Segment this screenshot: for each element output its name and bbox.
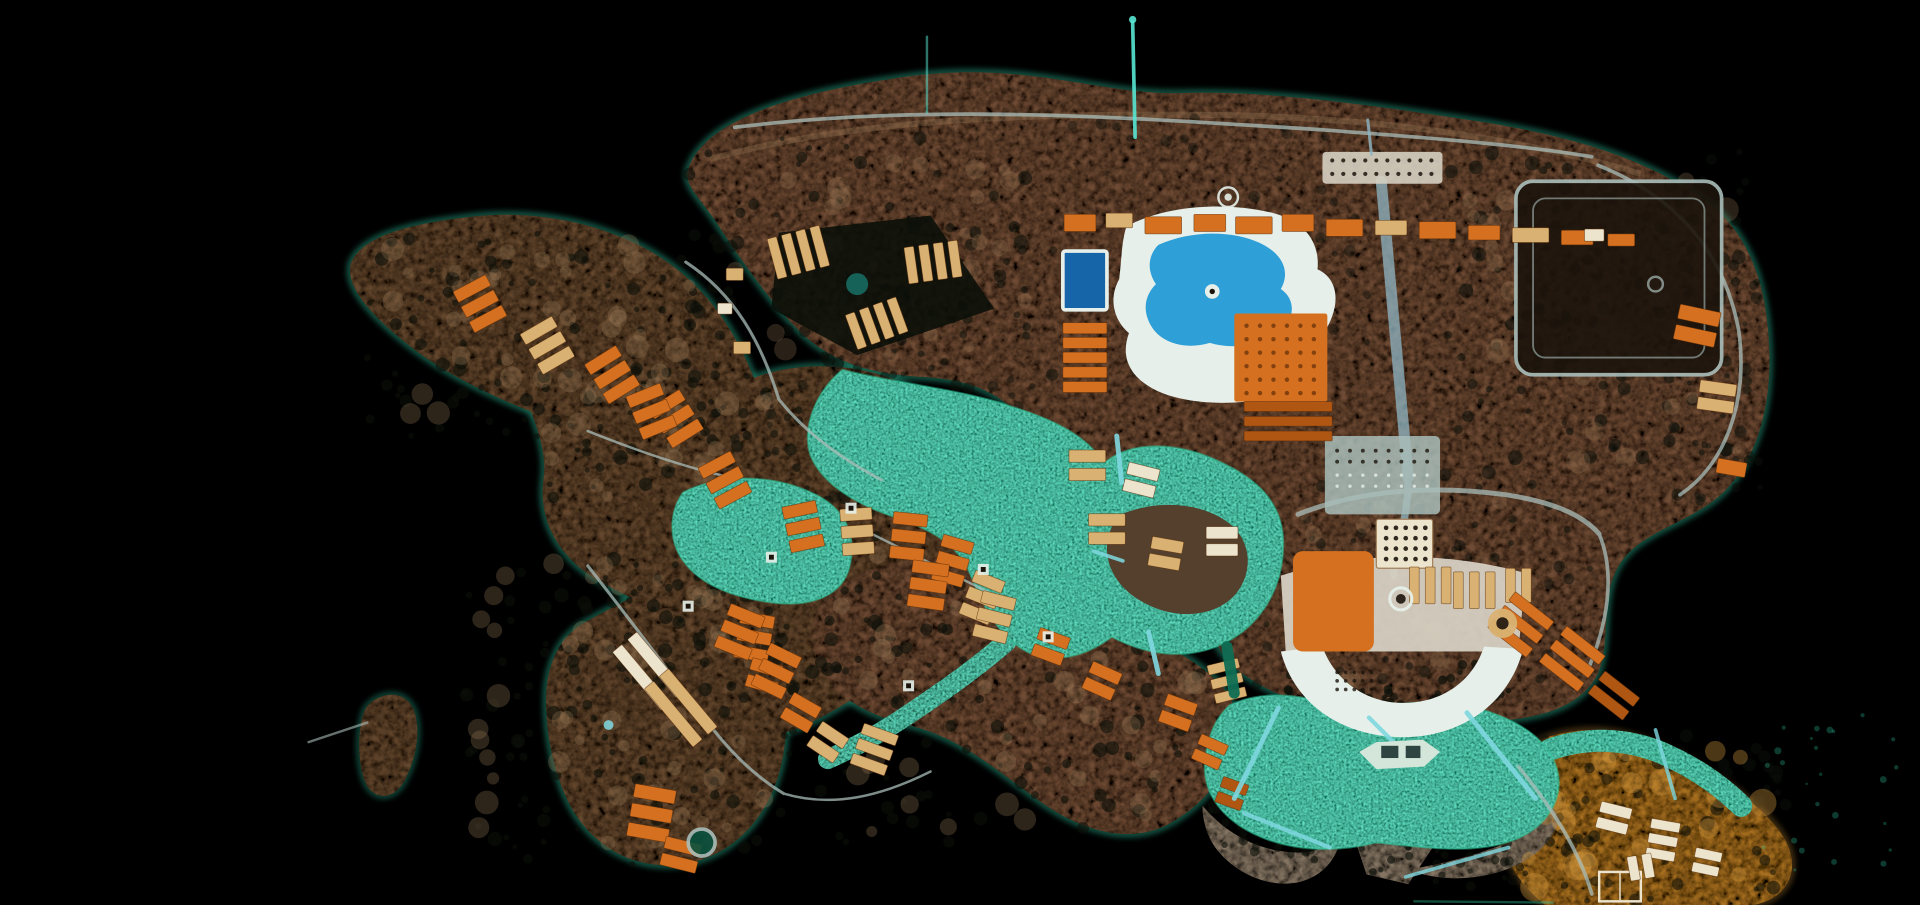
grid-dot <box>1361 460 1365 464</box>
speckle-dot <box>945 223 955 233</box>
speckle-dot <box>1697 494 1706 503</box>
speckle-dot <box>660 274 667 281</box>
building-roof <box>1089 532 1126 544</box>
speckle-dot <box>710 370 720 380</box>
speckle-dot <box>475 791 499 815</box>
speckle-dot <box>1774 747 1781 754</box>
speckle-dot <box>1172 744 1178 750</box>
speckle-dot <box>1378 867 1383 872</box>
speckle-dot <box>726 795 739 808</box>
speckle-dot <box>1561 882 1568 889</box>
speckle-dot <box>1127 682 1133 688</box>
speckle-dot <box>687 585 702 600</box>
speckle-dot <box>484 586 503 605</box>
speckle-dot <box>735 208 745 218</box>
speckle-dot <box>1728 260 1739 271</box>
speckle-dot <box>602 491 613 502</box>
speckle-dot <box>885 154 903 172</box>
speckle-dot <box>488 832 502 846</box>
speckle-dot <box>589 478 603 492</box>
speckle-dot <box>1153 740 1167 754</box>
speckle-dot <box>506 752 515 761</box>
speckle-dot <box>1104 171 1109 176</box>
building-roof <box>1512 228 1549 243</box>
grid-dot <box>1429 172 1433 176</box>
speckle-dot <box>542 806 550 814</box>
speckle-dot <box>1604 879 1613 888</box>
speckle-dot <box>1124 386 1131 393</box>
grid-dot <box>1374 172 1378 176</box>
speckle-dot <box>403 268 414 279</box>
speckle-dot <box>701 589 723 611</box>
speckle-dot <box>1472 247 1486 261</box>
grid-dot <box>1418 158 1422 162</box>
speckle-dot <box>830 187 852 209</box>
speckle-dot <box>884 347 898 361</box>
speckle-dot <box>1387 856 1395 864</box>
grid-dot <box>1271 324 1275 328</box>
building-roof <box>1063 323 1107 334</box>
gazebo-pad <box>1043 631 1054 642</box>
speckle-dot <box>1046 369 1058 381</box>
boat-cabin-fore <box>1406 746 1421 758</box>
speckle-dot <box>1467 379 1477 389</box>
speckle-dot <box>1562 163 1574 175</box>
speckle-dot <box>899 757 919 777</box>
speckle-dot <box>468 817 489 838</box>
building-roof <box>718 303 733 314</box>
grid-dot <box>1413 546 1418 551</box>
speckle-dot <box>989 190 1000 201</box>
speckle-dot <box>1587 566 1593 572</box>
speckle-dot <box>403 233 415 245</box>
speckle-dot <box>472 610 490 628</box>
speckle-dot <box>665 584 673 592</box>
speckle-dot <box>613 450 628 465</box>
speckle-dot <box>1000 171 1020 191</box>
speckle-dot <box>1832 730 1836 734</box>
building-roof <box>1485 572 1495 609</box>
speckle-dot <box>1491 856 1500 865</box>
grid-dot <box>1271 377 1275 381</box>
speckle-dot <box>843 839 849 845</box>
speckle-dot <box>502 259 512 269</box>
speckle-dot <box>1029 383 1035 389</box>
grid-dot <box>1413 557 1418 562</box>
speckle-dot <box>924 790 933 799</box>
pier-bridge <box>1133 22 1135 137</box>
speckle-dot <box>595 463 604 472</box>
speckle-dot <box>1894 765 1898 769</box>
speckle-dot <box>815 785 827 797</box>
grid-dot <box>1312 391 1316 395</box>
speckle-dot <box>1112 122 1121 131</box>
speckle-dot <box>1457 670 1462 675</box>
speckle-dot <box>1814 726 1820 732</box>
building-cluster <box>1419 222 1456 239</box>
speckle-dot <box>1351 538 1356 543</box>
building-roof <box>733 342 750 354</box>
speckle-dot <box>991 720 1004 733</box>
speckle-dot <box>436 358 450 372</box>
speckle-dot <box>1439 468 1452 481</box>
speckle-dot <box>792 463 801 472</box>
speckle-dot <box>1520 873 1548 901</box>
grid-dot <box>1374 449 1378 453</box>
speckle-dot <box>1466 881 1476 891</box>
building-roof <box>1206 544 1238 556</box>
speckle-dot <box>1364 339 1370 345</box>
speckle-dot <box>1502 875 1507 880</box>
speckle-dot <box>1601 774 1612 785</box>
speckle-dot <box>1284 686 1293 695</box>
grid-dot <box>1352 158 1356 162</box>
grid-dot <box>1423 525 1428 530</box>
speckle-dot <box>672 616 685 629</box>
speckle-dot <box>1344 245 1356 257</box>
speckle-dot <box>1022 332 1030 340</box>
speckle-dot <box>1150 770 1162 782</box>
speckle-dot <box>1262 641 1272 651</box>
speckle-dot <box>390 318 402 330</box>
boat-cabin-aft <box>1381 746 1398 758</box>
building-roof <box>1584 229 1604 241</box>
grid-dot <box>1335 679 1339 683</box>
speckle-dot <box>1743 386 1752 395</box>
speckle-dot <box>575 827 580 832</box>
speckle-dot <box>844 144 850 150</box>
speckle-dot <box>537 814 550 827</box>
speckle-dot <box>962 745 971 754</box>
grid-dot <box>1244 350 1248 354</box>
speckle-dot <box>639 477 652 490</box>
speckle-dot <box>1018 171 1032 185</box>
speckle-dot <box>748 199 759 210</box>
speckle-dot <box>485 255 497 267</box>
speckle-dot <box>1758 750 1770 762</box>
speckle-dot <box>798 380 808 390</box>
gazebo-pad <box>846 503 857 514</box>
pool-island-center <box>1210 289 1215 294</box>
speckle-dot <box>854 584 863 593</box>
speckle-dot <box>1793 868 1796 871</box>
building-cluster <box>1282 214 1314 231</box>
speckle-dot <box>1451 546 1457 552</box>
speckle-dot <box>543 553 564 574</box>
speckle-dot <box>585 467 590 472</box>
speckle-dot <box>1015 776 1028 789</box>
speckle-dot <box>364 354 371 361</box>
aerial-photo-stage <box>0 0 1920 905</box>
speckle-dot <box>415 338 427 350</box>
speckle-dot <box>634 329 646 341</box>
grid-dot <box>1312 350 1316 354</box>
speckle-dot <box>1024 762 1033 771</box>
speckle-dot <box>709 233 721 245</box>
grid-dot <box>1348 449 1352 453</box>
grid-dot <box>1298 364 1302 368</box>
building-roof <box>1419 222 1456 239</box>
grid-dot <box>1412 460 1416 464</box>
grid-dot <box>1312 364 1316 368</box>
speckle-dot <box>1692 440 1699 447</box>
north-parking-lot <box>1322 152 1442 184</box>
speckle-dot <box>1100 720 1113 733</box>
speckle-dot <box>429 268 435 274</box>
speckle-dot <box>1672 878 1684 890</box>
speckle-dot <box>1525 156 1539 170</box>
grid-dot <box>1403 525 1408 530</box>
grid-dot <box>1385 172 1389 176</box>
building-roof <box>1244 416 1332 426</box>
speckle-dot <box>943 836 954 847</box>
gazebo-roof <box>686 604 691 609</box>
grid-dot <box>1361 670 1365 674</box>
speckle-dot <box>1003 258 1010 265</box>
speckle-dot <box>738 408 748 418</box>
speckle-dot <box>921 737 932 748</box>
speckle-dot <box>972 234 988 250</box>
speckle-dot <box>1346 268 1356 278</box>
grid-dot <box>1244 364 1248 368</box>
grid-dot <box>1387 449 1391 453</box>
speckle-dot <box>1736 188 1743 195</box>
speckle-dot <box>582 439 591 448</box>
speckle-dot <box>486 417 494 425</box>
speckle-dot <box>582 447 592 457</box>
speckle-dot <box>777 382 783 388</box>
speckle-dot <box>567 655 580 668</box>
speckle-dot <box>1880 776 1887 783</box>
speckle-dot <box>672 579 683 590</box>
speckle-dot <box>1663 435 1675 447</box>
speckle-dot <box>1152 787 1158 793</box>
building-cluster <box>726 268 743 280</box>
speckle-dot <box>498 657 507 666</box>
gazebo-roof <box>849 506 854 511</box>
speckle-dot <box>732 735 746 749</box>
speckle-dot <box>870 636 876 642</box>
grid-dot <box>1374 460 1378 464</box>
speckle-dot <box>855 656 862 663</box>
speckle-dot <box>594 769 603 778</box>
grid-dot <box>1298 350 1302 354</box>
speckle-dot <box>1616 448 1636 468</box>
grid-dot <box>1394 557 1399 562</box>
speckle-dot <box>1486 339 1510 363</box>
grid-dot <box>1361 679 1365 683</box>
speckle-dot <box>1160 135 1172 147</box>
speckle-dot <box>991 240 1008 257</box>
speckle-dot <box>806 145 812 151</box>
speckle-dot <box>1751 292 1763 304</box>
speckle-dot <box>889 371 897 379</box>
speckle-dot <box>408 433 414 439</box>
speckle-dot <box>667 761 681 775</box>
speckle-dot <box>854 156 867 169</box>
speckle-dot <box>1329 198 1338 207</box>
grid-dot <box>1244 324 1248 328</box>
speckle-dot <box>1723 767 1733 777</box>
speckle-dot <box>1462 411 1474 423</box>
speckle-dot <box>1525 408 1531 414</box>
grid-dot <box>1413 484 1416 487</box>
speckle-dot <box>887 813 899 825</box>
grid-dot <box>1352 679 1356 683</box>
speckle-dot <box>1377 673 1388 684</box>
speckle-dot <box>1465 553 1473 561</box>
speckle-dot <box>528 279 536 287</box>
speckle-dot <box>1832 812 1839 819</box>
speckle-dot <box>519 753 527 761</box>
speckle-dot <box>624 677 630 683</box>
speckle-dot <box>1021 286 1029 294</box>
grid-dot <box>1341 158 1345 162</box>
speckle-dot <box>594 640 615 661</box>
speckle-dot <box>633 562 639 568</box>
speckle-dot <box>927 663 932 668</box>
grid-dot <box>1344 688 1348 692</box>
grid-dot <box>1425 484 1428 487</box>
grid-dot <box>1394 525 1399 530</box>
building-cluster <box>1064 214 1096 231</box>
speckle-dot <box>900 795 918 813</box>
speckle-dot <box>474 411 480 417</box>
speckle-dot <box>842 667 849 674</box>
speckle-dot <box>1516 863 1525 872</box>
speckle-dot <box>1405 662 1413 670</box>
speckle-dot <box>684 319 696 331</box>
speckle-dot <box>941 358 949 366</box>
grid-dot <box>1387 460 1391 464</box>
speckle-dot <box>397 385 405 393</box>
grid-dot <box>1335 460 1339 464</box>
speckle-dot <box>539 601 552 614</box>
speckle-dot <box>1647 896 1654 903</box>
speckle-dot <box>1105 741 1119 755</box>
grid-dot <box>1348 473 1351 476</box>
speckle-dot <box>618 740 630 752</box>
building-roof <box>1375 220 1407 235</box>
speckle-dot <box>609 749 615 755</box>
speckle-dot <box>509 281 514 286</box>
grid-dot <box>1258 391 1262 395</box>
building-roof <box>1063 352 1107 363</box>
grid-dot <box>1387 473 1390 476</box>
grid-dot <box>1412 449 1416 453</box>
speckle-dot <box>597 424 603 430</box>
speckle-dot <box>964 342 975 353</box>
speckle-dot <box>409 315 418 324</box>
grid-dot <box>1374 473 1377 476</box>
speckle-dot <box>1467 869 1472 874</box>
speckle-dot <box>1472 521 1478 527</box>
speckle-dot <box>525 663 534 672</box>
speckle-dot <box>1508 515 1516 523</box>
building-cluster <box>1194 214 1226 231</box>
speckle-dot <box>796 152 807 163</box>
speckle-dot <box>502 428 510 436</box>
speckle-dot <box>427 401 450 424</box>
speckle-dot <box>1496 191 1516 211</box>
speckle-dot <box>1564 526 1571 533</box>
speckle-dot <box>1454 425 1463 434</box>
gazebo-pad <box>766 552 777 563</box>
grid-dot <box>1425 460 1429 464</box>
speckle-dot <box>1759 855 1770 866</box>
grid-dot <box>1348 460 1352 464</box>
speckle-dot <box>824 615 834 625</box>
speckle-dot <box>875 624 896 645</box>
speckle-dot <box>602 318 622 338</box>
speckle-dot <box>626 597 633 604</box>
speckle-dot <box>534 252 550 268</box>
speckle-dot <box>1122 716 1141 735</box>
speckle-dot <box>507 617 514 624</box>
speckle-dot <box>1022 322 1031 331</box>
speckle-dot <box>1609 439 1621 451</box>
grid-dot <box>1285 391 1289 395</box>
speckle-dot <box>906 815 919 828</box>
speckle-dot <box>1031 791 1039 799</box>
grid-dot <box>1403 546 1408 551</box>
building-cluster <box>1453 572 1495 609</box>
building-roof <box>1194 214 1226 231</box>
grid-dot <box>1244 377 1248 381</box>
grid-dot <box>1285 364 1289 368</box>
speckle-dot <box>918 350 925 357</box>
courtyard-wall <box>1516 181 1722 374</box>
speckle-dot <box>578 643 589 654</box>
speckle-dot <box>1017 293 1031 307</box>
speckle-dot <box>560 266 572 278</box>
speckle-dot <box>780 172 797 189</box>
grid-dot <box>1298 391 1302 395</box>
gazebo-roof <box>906 683 911 688</box>
speckle-dot <box>582 700 592 710</box>
speckle-dot <box>1062 759 1071 768</box>
speckle-dot <box>471 730 490 749</box>
building-cluster <box>626 784 676 843</box>
speckle-dot <box>547 482 553 488</box>
speckle-dot <box>1405 852 1413 860</box>
speckle-dot <box>975 695 984 704</box>
speckle-dot <box>1819 773 1822 776</box>
speckle-dot <box>1250 847 1260 857</box>
building-cluster <box>907 560 950 611</box>
grid-dot <box>1361 473 1364 476</box>
round-feature <box>1129 16 1136 23</box>
grid-dot <box>1285 350 1289 354</box>
speckle-dot <box>1014 808 1036 830</box>
speckle-dot <box>965 159 985 179</box>
building-roof <box>1063 381 1107 392</box>
building-roof <box>1608 234 1635 246</box>
speckle-dot <box>447 397 459 409</box>
speckle-dot <box>730 434 740 444</box>
building-roof <box>1069 450 1106 462</box>
speckle-dot <box>1069 769 1086 786</box>
speckle-dot <box>1752 846 1762 856</box>
speckle-dot <box>581 256 589 264</box>
grid-dot <box>1298 324 1302 328</box>
speckle-dot <box>516 568 526 578</box>
speckle-dot <box>1767 881 1781 895</box>
hotel-parking-plaza <box>1325 436 1440 514</box>
building-roof <box>1326 219 1363 236</box>
speckle-dot <box>940 818 957 835</box>
building-roof <box>1063 367 1107 378</box>
